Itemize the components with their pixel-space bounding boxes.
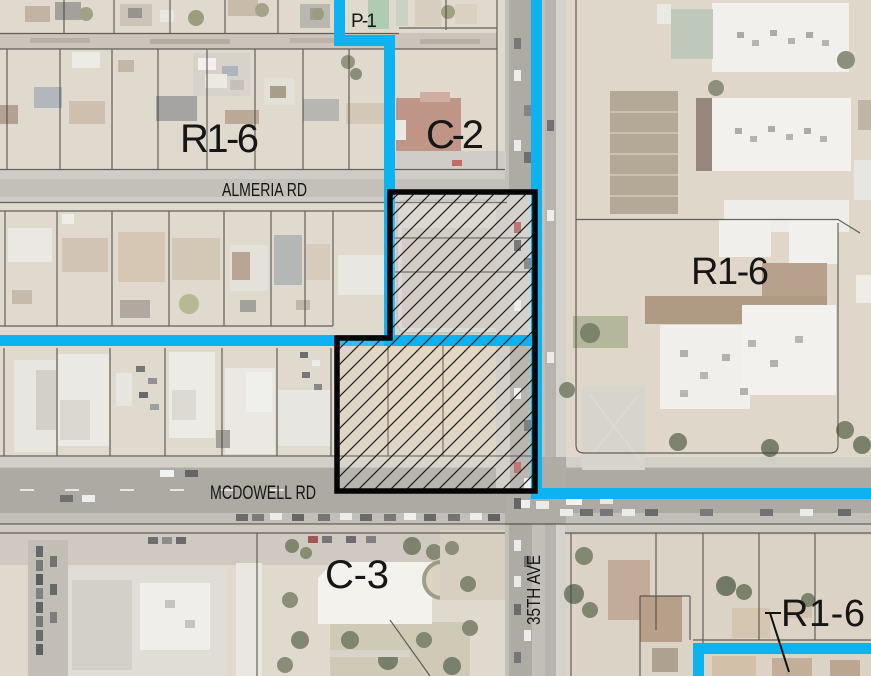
svg-text:MCDOWELL RD: MCDOWELL RD bbox=[210, 483, 316, 504]
svg-text:R1-6: R1-6 bbox=[180, 117, 259, 161]
svg-text:ALMERIA RD: ALMERIA RD bbox=[222, 180, 307, 200]
svg-text:35TH AVE: 35TH AVE bbox=[524, 555, 544, 625]
svg-text:R1-6: R1-6 bbox=[781, 593, 865, 635]
svg-text:C-2: C-2 bbox=[426, 113, 484, 157]
svg-text:C-3: C-3 bbox=[325, 553, 389, 597]
svg-text:P-1: P-1 bbox=[351, 11, 377, 32]
svg-text:R1-6: R1-6 bbox=[691, 251, 769, 293]
